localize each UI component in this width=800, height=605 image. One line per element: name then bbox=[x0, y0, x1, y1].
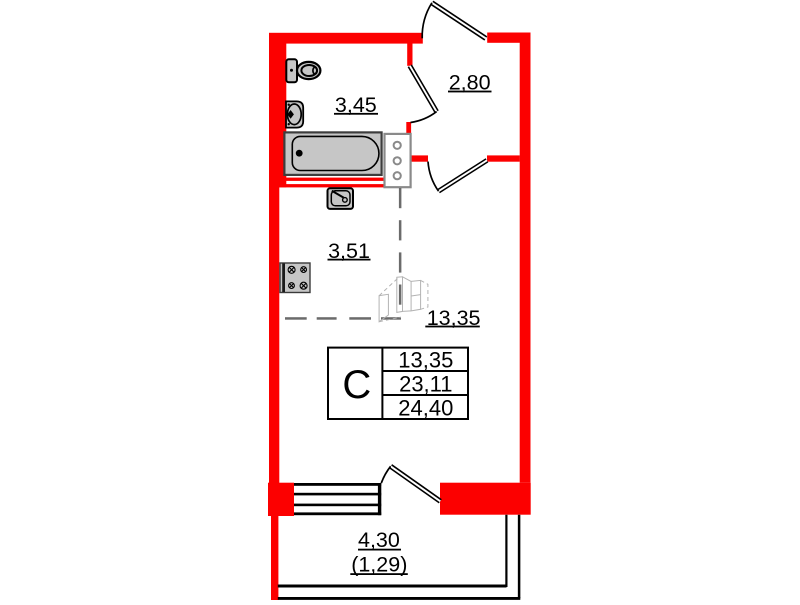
svg-text:4,30: 4,30 bbox=[358, 528, 400, 552]
svg-text:13,35: 13,35 bbox=[398, 347, 453, 372]
svg-text:(1,29): (1,29) bbox=[351, 552, 407, 576]
svg-text:С: С bbox=[342, 363, 371, 407]
svg-text:24,40: 24,40 bbox=[398, 395, 453, 420]
svg-text:23,11: 23,11 bbox=[399, 371, 452, 396]
